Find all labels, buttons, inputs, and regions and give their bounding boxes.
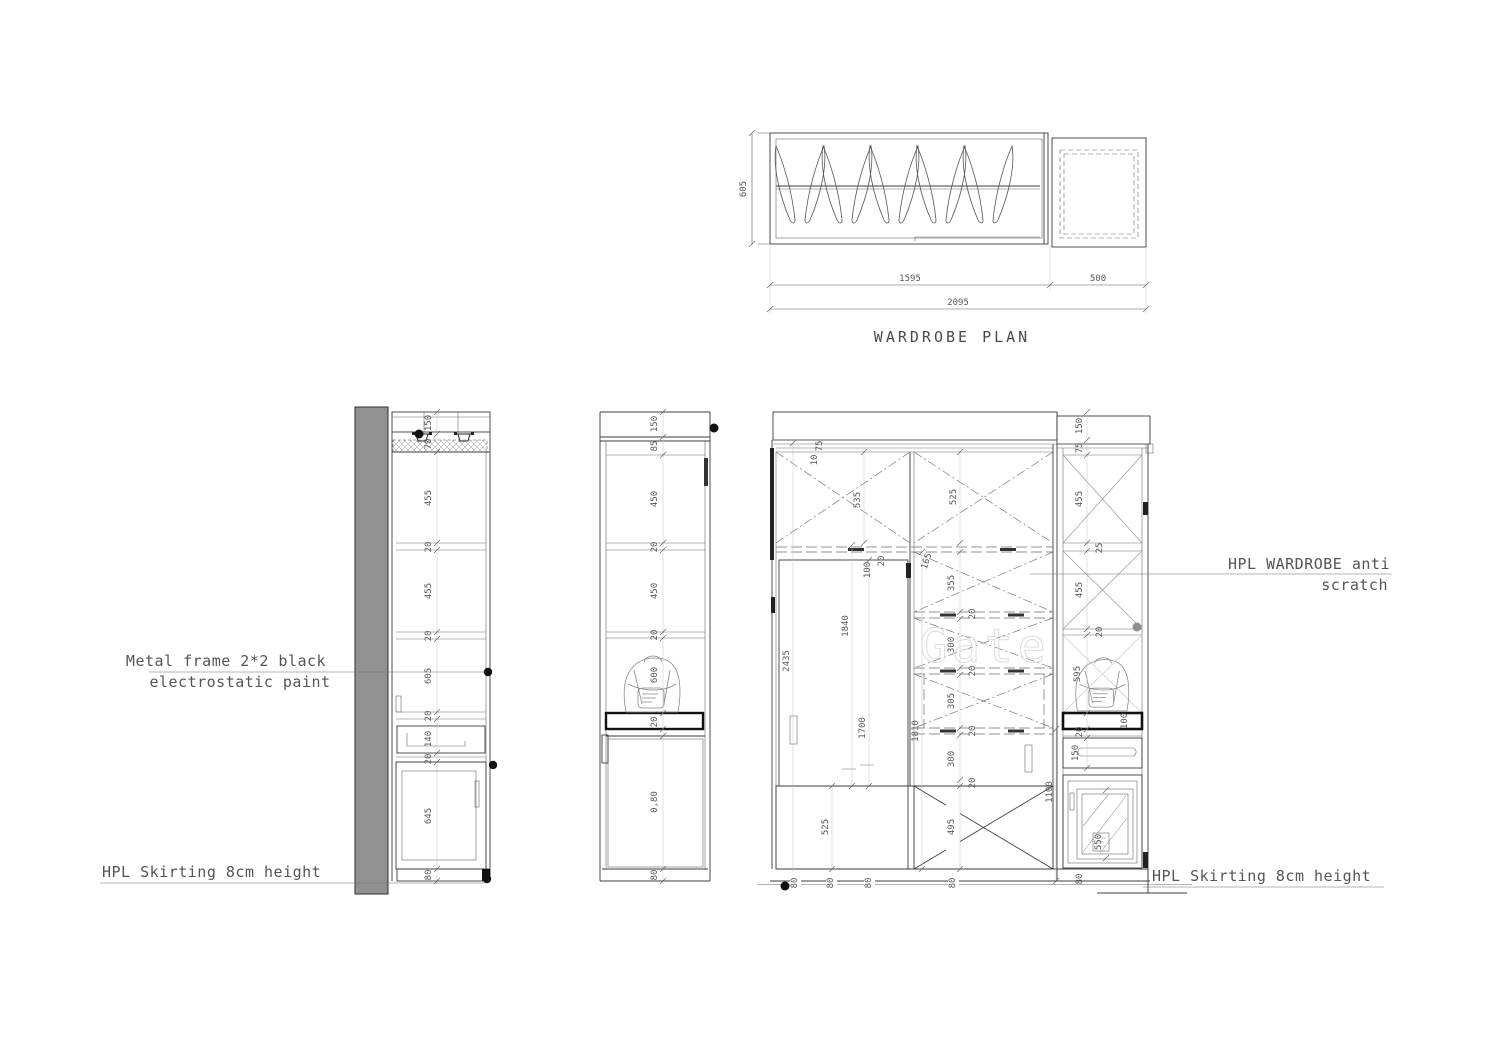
dim-text: 80 <box>864 878 874 889</box>
left-elevation-cabinet <box>392 412 490 881</box>
watermark: Gate <box>920 619 1051 673</box>
leader-dot <box>483 875 491 883</box>
dim-text: 20 <box>650 630 660 641</box>
dim-text: 535 <box>853 492 863 508</box>
dim-text: 100 <box>863 562 873 578</box>
middle-elevation: 150 85 450 20 450 20 600 20 0,80 80 <box>600 409 719 884</box>
plan-dimensions: 605 1595 500 2095 <box>739 130 1149 313</box>
dim-text: 80 <box>650 870 660 881</box>
dim-text: 525 <box>949 489 959 505</box>
dim-text: 150 <box>1075 418 1085 434</box>
dim-text: 1840 <box>841 615 851 637</box>
leader-dot <box>1133 623 1142 632</box>
dim-text: 80 <box>424 870 434 881</box>
dim-text: 20 <box>1075 727 1085 738</box>
dim-text: 605 <box>424 668 434 684</box>
dim-text: 455 <box>424 583 434 599</box>
dim-text: 600 <box>650 667 660 683</box>
ceiling-band <box>773 412 1153 453</box>
dim-text: 20 <box>1095 627 1105 638</box>
dim-text: 0,80 <box>650 791 660 813</box>
drawing-sheet: 605 1595 500 2095 WARDROBE PLAN 150 70 <box>0 0 1500 1060</box>
label-metal-frame-line1: Metal frame 2*2 black <box>126 652 326 670</box>
dim-text: 455 <box>424 490 434 506</box>
dim-text: 595 <box>1073 666 1083 682</box>
dim-text: 1100 <box>1045 781 1055 803</box>
dim-text: 80 <box>1075 874 1085 885</box>
left-elevation-dimensions: 150 70 455 20 455 20 605 20 140 20 645 8… <box>424 409 440 884</box>
dim-text: 150 <box>1071 745 1081 761</box>
leader-dot <box>710 424 719 433</box>
dim-text: 140 <box>424 731 434 747</box>
label-metal-frame-line2: electrostatic paint <box>149 673 330 691</box>
dim-plan-total: 2095 <box>947 298 969 308</box>
dim-text: 70 <box>424 439 434 450</box>
dim-text: 645 <box>424 808 434 824</box>
label-skirting-left: HPL Skirting 8cm height <box>102 863 321 881</box>
leader-dot <box>781 882 790 891</box>
dim-text: 80 <box>790 878 800 889</box>
label-skirting-right: HPL Skirting 8cm height <box>1152 867 1371 885</box>
dim-text: 2435 <box>782 650 792 672</box>
front-right-column <box>1063 444 1148 881</box>
leader-dot <box>489 761 497 769</box>
dim-text: 150 <box>424 415 434 431</box>
plan-title: WARDROBE PLAN <box>874 328 1030 346</box>
dim-text: 75 <box>815 441 825 452</box>
dim-text: 150 <box>650 416 660 432</box>
dim-text: 300 <box>947 751 957 767</box>
dim-text: 100 <box>1120 713 1130 729</box>
dim-text: 495 <box>947 819 957 835</box>
dim-text: 20 <box>424 542 434 553</box>
dim-text: 450 <box>650 491 660 507</box>
dim-text: 20 <box>968 778 978 789</box>
annotations: Metal frame 2*2 black electrostatic pain… <box>100 555 1392 893</box>
dim-text: 20 <box>877 556 887 567</box>
dim-plan-right: 500 <box>1090 274 1106 284</box>
dim-text: 1810 <box>911 720 921 742</box>
dim-text: 85 <box>650 441 660 452</box>
bag-sketch <box>1076 658 1129 711</box>
dim-plan-depth: 605 <box>739 181 749 197</box>
dim-text: 20 <box>968 609 978 620</box>
label-hpl-wardrobe-line2: scratch <box>1321 576 1388 594</box>
dim-text: 550 <box>1094 834 1104 850</box>
label-hpl-wardrobe-line1: HPL WARDROBE anti <box>1228 555 1390 573</box>
dim-text: 20 <box>424 754 434 765</box>
dim-text: 1700 <box>858 717 868 739</box>
dim-text: 355 <box>947 575 957 591</box>
plan-hangers <box>775 146 1013 223</box>
dim-text: 25 <box>1095 543 1105 554</box>
dim-text: 20 <box>424 711 434 722</box>
middle-elevation-dimensions: 150 85 450 20 450 20 600 20 0,80 80 <box>650 409 666 884</box>
dim-text: 80 <box>948 878 958 889</box>
dim-text: 75 <box>1075 443 1085 454</box>
dim-text: 450 <box>650 583 660 599</box>
dim-text: 80 <box>826 878 836 889</box>
dim-text: 10 <box>810 455 820 466</box>
dim-text: 525 <box>821 819 831 835</box>
dim-text: 20 <box>968 726 978 737</box>
left-elevation: 150 70 455 20 455 20 605 20 140 20 645 8… <box>355 407 497 894</box>
dim-text: 20 <box>424 631 434 642</box>
wardrobe-drawing: 605 1595 500 2095 WARDROBE PLAN 150 70 <box>0 0 1500 1060</box>
dim-text: 455 <box>1075 491 1085 507</box>
plan-view: 605 1595 500 2095 WARDROBE PLAN <box>739 130 1149 346</box>
dim-text: 305 <box>947 693 957 709</box>
dim-text: 455 <box>1075 582 1085 598</box>
dim-text: 20 <box>650 542 660 553</box>
dim-plan-left: 1595 <box>899 274 921 284</box>
wall-section <box>355 407 388 894</box>
dim-text: 20 <box>650 717 660 728</box>
